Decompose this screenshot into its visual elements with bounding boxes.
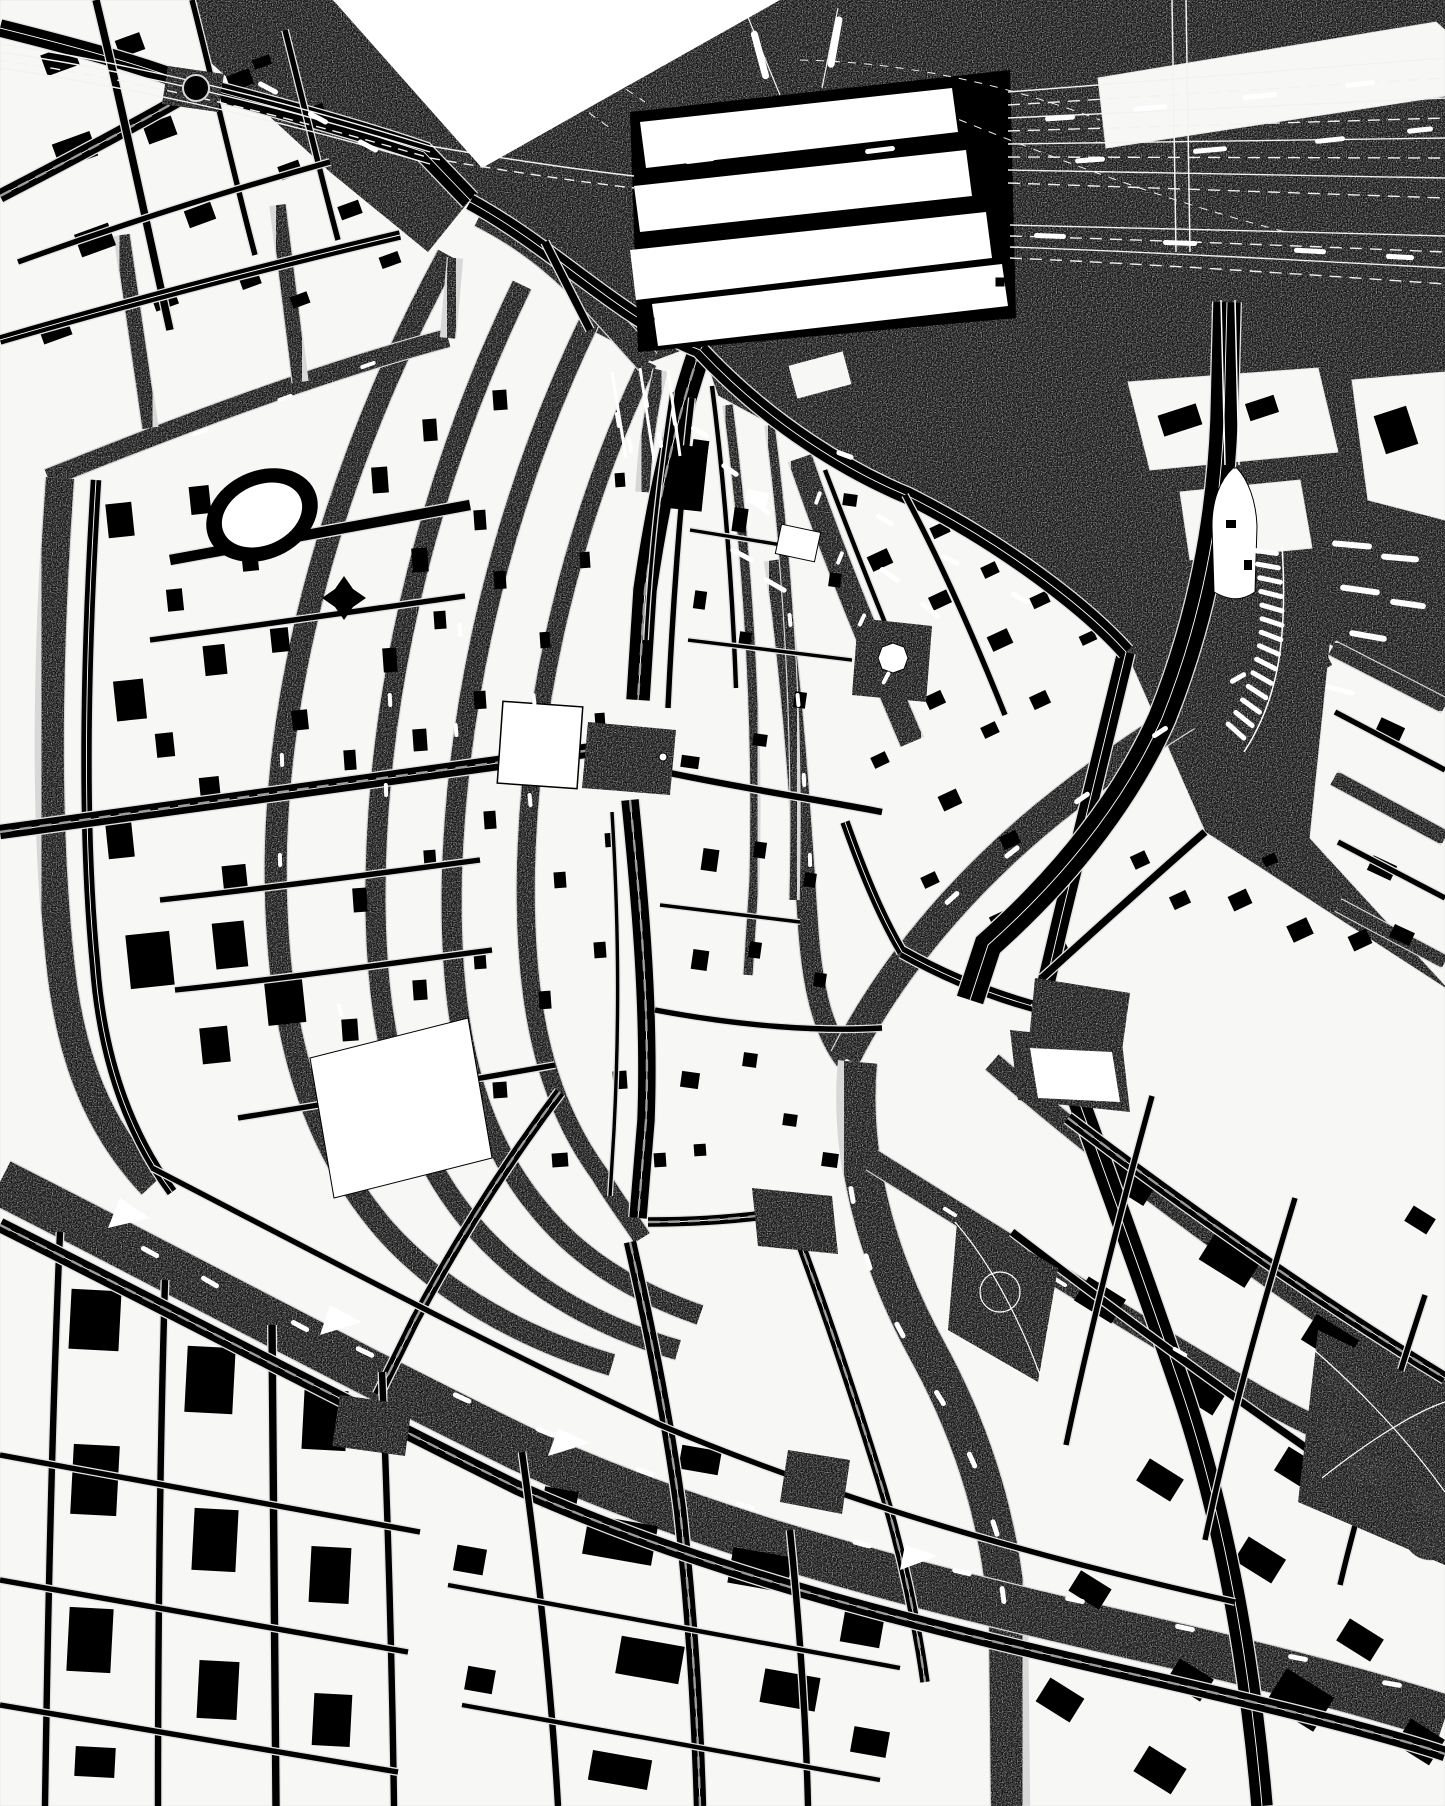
courtyards-0-b59 bbox=[593, 942, 606, 959]
courtyards-0-b42 bbox=[343, 750, 356, 771]
landmarks-6 bbox=[659, 753, 667, 761]
landmarks-8 bbox=[1030, 1048, 1120, 1102]
landmarks-15 bbox=[996, 278, 1005, 287]
courtyards-0-b120 bbox=[191, 1508, 238, 1572]
courtyards-0-b25 bbox=[270, 627, 290, 653]
courtyards-0-b57 bbox=[552, 1152, 569, 1167]
courtyards-0-b63 bbox=[615, 473, 626, 488]
courtyards-0-b52 bbox=[539, 632, 550, 649]
boats-0-bar34 bbox=[388, 693, 393, 707]
courtyards-0-b125 bbox=[74, 1746, 116, 1778]
boats-0-bar32 bbox=[802, 773, 807, 787]
boats-0-bar36 bbox=[280, 753, 284, 767]
courtyards-0-b31 bbox=[199, 1026, 231, 1065]
courtyards-0-b70 bbox=[680, 755, 699, 769]
squares-4 bbox=[332, 1395, 412, 1456]
courtyards-0-b68 bbox=[693, 590, 707, 609]
landmarks-7 bbox=[668, 444, 709, 511]
courtyards-0-b53 bbox=[553, 872, 566, 889]
courtyards-0-b29 bbox=[212, 920, 249, 969]
courtyards-0-b19 bbox=[189, 485, 212, 515]
courtyards-0-b43 bbox=[412, 729, 428, 752]
courtyards-0-b80 bbox=[813, 972, 827, 988]
courtyards-0-b132 bbox=[453, 1545, 487, 1576]
courtyards-0-b117 bbox=[70, 1444, 120, 1516]
courtyards-0-b54 bbox=[538, 991, 551, 1010]
courtyards-0-b62 bbox=[579, 552, 590, 569]
harbor-8 bbox=[1244, 560, 1252, 570]
courtyards-0-b82 bbox=[842, 493, 858, 507]
courtyards-0-b28 bbox=[125, 931, 174, 989]
courtyards-0-b22 bbox=[105, 821, 135, 860]
courtyards-0-b121 bbox=[197, 1660, 240, 1720]
courtyards-0-b64 bbox=[654, 1153, 667, 1168]
courtyards-0-b38 bbox=[473, 510, 486, 531]
courtyards-0-b39 bbox=[382, 648, 398, 673]
courtyards-0-b37 bbox=[411, 547, 429, 572]
courtyards-0-b18 bbox=[105, 502, 134, 539]
landmarks-5 bbox=[878, 643, 908, 673]
courtyards-0-b71 bbox=[752, 733, 768, 747]
courtyards-0-b36 bbox=[492, 390, 507, 411]
map-canvas bbox=[0, 0, 1445, 1806]
courtyards-0-b76 bbox=[680, 1071, 700, 1089]
courtyards-0-b118 bbox=[66, 1607, 113, 1673]
courtyards-0-b34 bbox=[371, 466, 389, 493]
courtyards-0-b65 bbox=[694, 1144, 707, 1157]
parks-8 bbox=[986, 1284, 1018, 1308]
courtyards-0-b56 bbox=[492, 1082, 507, 1099]
streets-40-bed bbox=[272, 1325, 276, 1806]
courtyards-0-b84 bbox=[821, 1152, 839, 1168]
courtyards-0-b72 bbox=[701, 848, 720, 872]
boats-0-bar37 bbox=[278, 853, 282, 867]
squares-2 bbox=[752, 1188, 838, 1254]
harbor-7 bbox=[1226, 520, 1236, 528]
courtyards-0-b119 bbox=[184, 1346, 235, 1414]
courtyards-0-b40 bbox=[433, 611, 446, 630]
landmarks-0 bbox=[497, 701, 583, 788]
courtyards-0-b48 bbox=[341, 1018, 358, 1041]
courtyards-0-b73 bbox=[753, 841, 767, 859]
courtyards-0-b116 bbox=[68, 1289, 121, 1352]
courtyards-0-b83 bbox=[782, 1113, 798, 1127]
boats-0-bar35 bbox=[384, 783, 388, 797]
courtyards-0-b133 bbox=[464, 1666, 496, 1694]
courtyards-0-b21 bbox=[202, 644, 227, 676]
courtyards-0-b124 bbox=[312, 1693, 353, 1747]
courtyards-0-b123 bbox=[309, 1546, 352, 1604]
landmarks-14 bbox=[646, 318, 655, 327]
courtyards-0-b33 bbox=[155, 732, 175, 758]
courtyards-0-b35 bbox=[422, 419, 438, 442]
courtyards-0-b75 bbox=[748, 941, 762, 959]
courtyards-0-b49 bbox=[412, 980, 427, 1001]
courtyards-0-b74 bbox=[691, 949, 710, 971]
landmarks-9 bbox=[183, 75, 209, 101]
courtyards-0-b32 bbox=[166, 588, 184, 612]
map-layers bbox=[0, 0, 1445, 1806]
water-6-water bbox=[448, 258, 455, 338]
courtyards-0-b77 bbox=[742, 1052, 758, 1068]
city-map bbox=[0, 0, 1445, 1806]
courtyards-0-b44 bbox=[473, 691, 486, 710]
courtyards-0-b47 bbox=[483, 811, 496, 830]
courtyards-0-b20 bbox=[113, 679, 147, 722]
courtyards-0-b45 bbox=[352, 888, 368, 913]
courtyards-0-b41 bbox=[493, 571, 506, 590]
courtyards-0-b79 bbox=[803, 872, 817, 888]
boats-0-bar33 bbox=[808, 853, 812, 867]
courtyards-0-b81 bbox=[828, 572, 842, 588]
courtyards-0-b27 bbox=[291, 709, 309, 731]
